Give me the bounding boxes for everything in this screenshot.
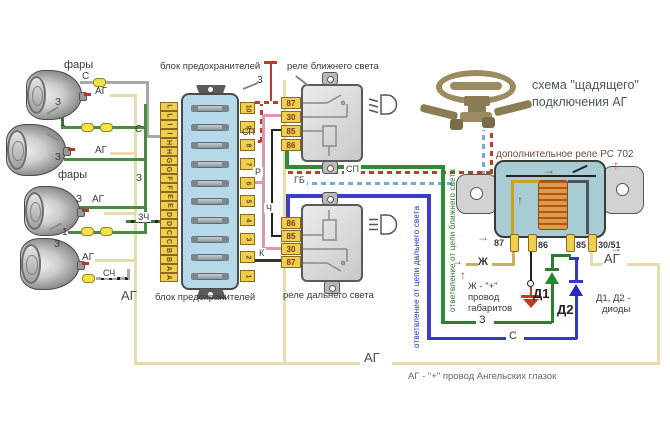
fuse-number-text: 3 xyxy=(244,237,251,241)
fuse-terminal-letter: B xyxy=(160,255,178,264)
aux-pin-3051-label: 30/51 xyxy=(598,240,621,250)
wire-ag-stub-h3 xyxy=(104,212,136,215)
relay-high-internals xyxy=(303,206,361,280)
zh-note-line1: Ж - "+" xyxy=(468,281,498,292)
wire-label-zch: ЗЧ xyxy=(136,212,151,222)
headlight-1 xyxy=(26,70,82,120)
fuse-terminal-letter: A xyxy=(160,264,178,273)
aux-relay-wire-yellow-v xyxy=(511,182,514,234)
headlight-contact-tick xyxy=(82,209,89,212)
fusebox-label-top: блок предохранителей xyxy=(160,61,260,72)
current-arrow-right-top: → xyxy=(543,165,555,175)
wire-ch-vertical xyxy=(271,129,273,237)
terminal-letter: L xyxy=(166,104,173,108)
connector-z-1 xyxy=(81,123,94,132)
terminal-letter: H xyxy=(166,140,173,145)
wire-ag-right-seg1 xyxy=(590,263,602,266)
fuse-number: 5 xyxy=(240,195,255,207)
diode2-bar xyxy=(569,280,583,283)
aux-relay-label: дополнительное реле РС 702 xyxy=(496,149,633,160)
wire-r-bottom-stub xyxy=(264,247,281,250)
aux-pin-85-tab xyxy=(566,234,575,252)
fuse-terminal-letter: F xyxy=(160,174,178,183)
fuse-number: 6 xyxy=(240,177,255,189)
wire-label-s-1: С xyxy=(82,71,89,82)
fuse-terminal-letter: I xyxy=(160,129,178,138)
diode1-bar xyxy=(545,268,559,271)
aux-pin-85-label: 85 xyxy=(576,240,586,250)
fuse-terminal-letter: D xyxy=(160,219,178,228)
ag-note: АГ - "+" провод Ангельских глазок xyxy=(408,371,556,382)
wiring-diagram-canvas: фары фары С АГ З 1 З АГ З АГ ЗЧ 1 З АГ С… xyxy=(0,0,670,436)
terminal-letter: H xyxy=(166,149,173,154)
relay-high-pin-87: 87 xyxy=(281,256,301,268)
wire-ground-vertical xyxy=(530,252,532,282)
relay-low-pin-86: 86 xyxy=(281,139,301,151)
terminal-letter: E xyxy=(165,203,172,208)
branch-low-caption: ответвление от цепи ближнего света xyxy=(448,152,457,312)
low-beam-icon xyxy=(366,92,400,118)
connector-sch xyxy=(82,274,95,283)
relay-high-label: реле дальнего света xyxy=(283,290,374,301)
fusebox-label-bottom: блок предохранителей xyxy=(155,292,255,303)
wire-label-ag-bottom: АГ xyxy=(364,350,380,365)
relay-high-pin-86: 86 xyxy=(281,217,301,229)
fuse-terminal-letter: L xyxy=(160,102,178,111)
fuse-number-text: 1 xyxy=(244,274,251,278)
branch-high-vertical xyxy=(427,194,431,340)
relay-low-internals xyxy=(303,86,361,160)
wire-sp-stalk-vertical xyxy=(490,130,493,174)
wire-s-segment xyxy=(106,81,148,84)
aux-pin-3051-tab xyxy=(588,234,597,252)
branch-high-horizontal xyxy=(286,194,431,198)
fuse-number-text: 2 xyxy=(244,255,251,259)
fuse-9 xyxy=(192,124,228,131)
terminal-letter: A xyxy=(166,275,173,280)
headlight-4 xyxy=(20,238,80,290)
stalk-right xyxy=(494,100,533,117)
fuse-number: 3 xyxy=(240,233,255,245)
headlight-contact-tick xyxy=(84,93,91,96)
diode2-label: Д2 xyxy=(557,302,574,317)
fuse-2 xyxy=(192,254,228,261)
wire-label-ag-right: АГ xyxy=(604,251,620,266)
fuse-4 xyxy=(192,217,228,224)
fuse-terminal-letter: C xyxy=(160,237,178,246)
diode1-elbow-h xyxy=(551,254,571,257)
aux-relay-ear-right-hole xyxy=(616,183,629,196)
fuse-terminal-letter: D xyxy=(160,210,178,219)
steering-column-1 xyxy=(464,96,490,106)
fuse-number-text: 5 xyxy=(244,199,251,203)
power-feed-vertical xyxy=(270,63,272,103)
headlight-lens-inner xyxy=(12,141,24,162)
terminal-letter: I xyxy=(165,133,172,135)
relay-low-label: реле ближнего света xyxy=(287,61,379,72)
fuse-terminal-letter: B xyxy=(160,246,178,255)
wire-label-sp-1: СП xyxy=(242,127,255,137)
current-arrow-up-coil: ↑ xyxy=(517,195,523,205)
fuse-number-text: 7 xyxy=(244,162,251,166)
fuse-terminal-letter: E xyxy=(160,201,178,210)
relay-high-pin-85: 85 xyxy=(281,230,301,242)
fuse-number-text: 4 xyxy=(244,218,251,222)
branch-low-vertical xyxy=(441,165,445,324)
wire-label-z-1: З xyxy=(55,97,61,108)
wire-label-z-line: З xyxy=(479,314,486,326)
wire-label-z-bus: З xyxy=(136,173,142,184)
wire-label-z-2: З xyxy=(55,152,61,163)
callout-1a: 1 xyxy=(60,118,66,129)
terminal-letter: B xyxy=(166,257,173,262)
fuse-terminal-letter: G xyxy=(160,165,178,174)
aux-pin-86-label: 86 xyxy=(538,240,548,250)
aux-relay-wire-dark-v xyxy=(586,182,589,234)
diode-note-line1: Д1, Д2 - xyxy=(596,293,631,304)
headlight-contact-tick xyxy=(68,148,75,151)
callout-line-3 xyxy=(243,82,258,89)
wire-label-ag-3: АГ xyxy=(92,194,104,205)
fuse-number: 4 xyxy=(240,214,255,226)
headlight-lens-inner xyxy=(30,202,41,222)
aux-relay-ear-left-hole xyxy=(470,187,483,200)
wire-s-line-seg2 xyxy=(524,337,577,340)
relay-low-pin-85: 85 xyxy=(281,125,301,137)
wire-label-gb: ГБ xyxy=(292,175,307,185)
fuse-6 xyxy=(192,180,228,187)
wire-ag-stub-h4 xyxy=(95,259,136,262)
wire-label-sch: СЧ xyxy=(101,268,117,278)
wire-z-h2 xyxy=(64,158,146,161)
scheme-title-line2: подключения АГ xyxy=(532,95,627,109)
connector-z-2 xyxy=(100,123,113,132)
terminal-letter: B xyxy=(166,248,173,253)
terminal-letter: D xyxy=(166,212,173,217)
wire-label-z-3: З xyxy=(76,194,82,205)
aux-relay-coil xyxy=(538,180,568,230)
wire-sch-hook xyxy=(127,269,130,278)
diode1-lead-bottom xyxy=(551,284,554,323)
wire-label-s-line: С xyxy=(509,330,517,342)
diode-note-line2: диоды xyxy=(602,304,630,315)
terminal-letter: A xyxy=(166,266,173,271)
power-t-symbol xyxy=(264,61,277,64)
terminal-letter: G xyxy=(165,167,172,172)
wire-label-r: Р xyxy=(253,167,263,177)
fuse-terminal-letter: L xyxy=(160,111,178,120)
terminal-letter: F xyxy=(166,176,173,180)
fuse-terminal-letter: I xyxy=(160,120,178,129)
diode2-lead-bottom xyxy=(575,296,578,339)
diode2-lead-top xyxy=(575,257,578,282)
diode1-symbol xyxy=(545,272,559,284)
headlight-2 xyxy=(6,124,66,176)
aux-relay-wire-yellow-h xyxy=(511,180,539,183)
high-beam-icon xyxy=(366,212,400,238)
zh-note-line2: провод xyxy=(468,292,499,303)
headlight-lens-inner xyxy=(32,86,43,106)
wire-zh-seg1 xyxy=(466,263,478,266)
wire-s-line-seg1 xyxy=(429,337,506,340)
connector-z-3 xyxy=(81,227,94,236)
branch-high-caption: ответвление от цепи дальнего света xyxy=(412,188,421,348)
fuse-terminal-letter: C xyxy=(160,228,178,237)
aux-pin-87-tab xyxy=(510,234,519,252)
label-fary-mid: фары xyxy=(58,169,87,181)
terminal-letter: C xyxy=(166,239,173,244)
fuse-number-text: 10 xyxy=(244,104,251,112)
wire-sp-to-pin87 xyxy=(255,101,281,104)
fuse-number: 10 xyxy=(240,102,255,114)
zh-note-line3: габаритов xyxy=(468,303,512,314)
diode1-label: Д1 xyxy=(533,286,550,301)
fuse-number-text: 6 xyxy=(244,181,251,185)
wire-r-vertical xyxy=(262,115,265,251)
wire-label-ag-bus: АГ xyxy=(121,288,137,303)
scheme-title-line1: схема "щадящего" xyxy=(532,78,639,92)
branch-low-horizontal xyxy=(285,165,445,169)
terminal-letter: E xyxy=(165,194,172,199)
wire-ag-right-vertical xyxy=(657,263,660,365)
wire-z-line-seg1 xyxy=(443,321,476,324)
fuse-5 xyxy=(192,198,228,205)
current-arrow-zh: → xyxy=(451,256,463,266)
wire-label-ag-1: АГ xyxy=(95,86,107,97)
wire-label-ag-2: АГ xyxy=(95,145,107,156)
wire-label-zh: Ж xyxy=(478,256,488,268)
fuse-number: 1 xyxy=(240,270,255,282)
stalk-left xyxy=(420,104,459,121)
wire-label-z-4: З xyxy=(54,239,60,250)
callout-1b: 1 xyxy=(62,227,68,238)
stalk-left-switch xyxy=(450,119,463,130)
wire-zh-seg2 xyxy=(492,263,515,266)
wire-ag-bottom-seg1 xyxy=(134,362,360,365)
fuse-terminal-letter: A xyxy=(160,273,178,282)
fusebox-bracket-top-hole xyxy=(208,87,213,92)
relay-low-tab-bottom xyxy=(322,161,338,174)
fuse-terminal-letter: H xyxy=(160,138,178,147)
wire-ag-right-seg2 xyxy=(627,263,660,266)
wire-label-ag-4: АГ xyxy=(82,252,94,263)
label-fary-top: фары xyxy=(64,59,93,71)
wire-ch-bottom-stub xyxy=(271,235,281,237)
diode1-lead-top xyxy=(551,254,554,269)
current-arrow-up-right: ↑ xyxy=(613,160,619,170)
diode2-symbol xyxy=(569,284,583,296)
relay-low-pin-87: 87 xyxy=(281,97,301,109)
wire-label-s-2: С xyxy=(135,124,142,135)
callout-3: 3 xyxy=(257,75,263,86)
fuse-3 xyxy=(192,236,228,243)
current-arrow-pin87: → xyxy=(477,232,489,242)
fuse-terminal-letter: H xyxy=(160,147,178,156)
fuse-number: 8 xyxy=(240,139,255,151)
connector-z-4 xyxy=(100,227,113,236)
aux-relay-wire-dark-h xyxy=(568,180,589,183)
headlight-lens-inner xyxy=(26,255,38,276)
fuse-terminal-letter: E xyxy=(160,192,178,201)
fuse-1 xyxy=(192,273,228,280)
wire-ag-stub-h2 xyxy=(110,152,136,155)
terminal-letter: I xyxy=(165,124,172,126)
wire-r-top-stub xyxy=(264,114,281,117)
wire-label-k: К xyxy=(257,248,266,258)
aux-pin-86-tab xyxy=(528,234,537,252)
stalk-right-switch xyxy=(482,117,495,128)
fuse-7 xyxy=(192,161,228,168)
wire-z-line-seg2 xyxy=(494,321,552,324)
current-arrow-zh-note: ↑ xyxy=(460,270,466,280)
relay-low-pin-30: 30 xyxy=(281,111,301,123)
fuse-terminal-letter: G xyxy=(160,156,178,165)
wire-ag-stub-h1 xyxy=(110,94,136,97)
terminal-letter: G xyxy=(165,158,172,163)
fuse-number-text: 8 xyxy=(244,143,251,147)
aux-pin-87-label: 87 xyxy=(494,238,504,248)
wire-ch-top-stub xyxy=(271,129,281,131)
fuse-number: 2 xyxy=(240,251,255,263)
wire-label-sp-2: СП xyxy=(344,164,361,174)
fuse-8 xyxy=(192,142,228,149)
terminal-letter: F xyxy=(166,185,173,189)
terminal-letter: C xyxy=(166,230,173,235)
fuse-10 xyxy=(192,105,228,112)
wire-label-ch: Ч xyxy=(264,203,274,213)
relay-high-pin-30: 30 xyxy=(281,243,301,255)
terminal-letter: D xyxy=(166,221,173,226)
terminal-letter: L xyxy=(166,113,173,117)
wire-ag-bottom-seg2 xyxy=(392,362,660,365)
fuse-terminal-letter: F xyxy=(160,183,178,192)
steering-wheel-spoke xyxy=(450,82,502,90)
